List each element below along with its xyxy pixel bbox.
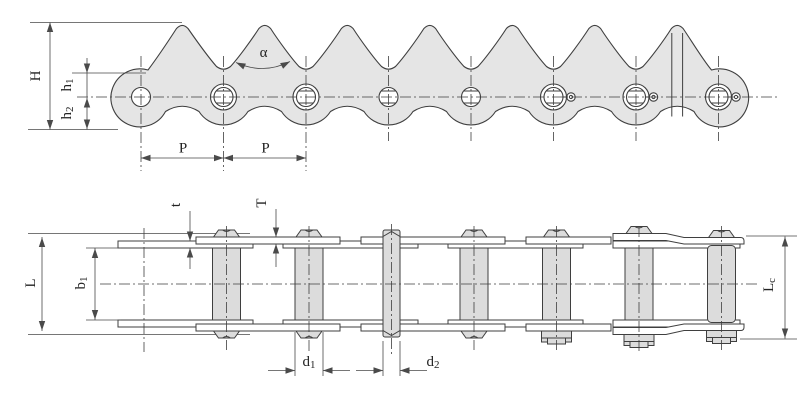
plan-view: t T L b1 d1 bbox=[23, 198, 797, 376]
dim-label-Lc: Lc bbox=[761, 278, 778, 292]
outer-plate bbox=[196, 324, 340, 331]
dim-label-P-left: P bbox=[179, 141, 187, 157]
dimension-pitch: P P bbox=[141, 141, 306, 162]
dim-label-T: T bbox=[254, 198, 270, 207]
outer-plate bbox=[196, 237, 340, 244]
dimension-t: t bbox=[168, 202, 193, 269]
dimension-h2: h2 bbox=[59, 98, 90, 130]
dim-label-b1: b1 bbox=[73, 277, 90, 290]
dim-label-h1: h1 bbox=[59, 79, 76, 92]
dimension-L: L bbox=[23, 237, 45, 331]
chain-technical-drawing: H h1 h2 P P α bbox=[0, 0, 812, 402]
dim-label-d1: d1 bbox=[303, 354, 316, 371]
drawing-canvas: H h1 h2 P P α bbox=[0, 0, 812, 402]
dim-label-H: H bbox=[28, 70, 44, 81]
dimension-T: T bbox=[254, 198, 279, 267]
sharp-top-plate-outline bbox=[111, 25, 749, 126]
outer-plate bbox=[526, 324, 611, 331]
dimension-Lc: Lc bbox=[761, 237, 788, 339]
dim-label-d2: d2 bbox=[427, 354, 440, 371]
outer-plate bbox=[526, 237, 611, 244]
dim-label-t: t bbox=[168, 202, 184, 207]
dim-label-alpha: α bbox=[260, 45, 268, 61]
dimension-d2: d2 bbox=[356, 341, 440, 376]
dimension-d1: d1 bbox=[268, 332, 350, 376]
dimension-b1: b1 bbox=[73, 248, 121, 320]
side-view: H h1 h2 P P α bbox=[28, 23, 778, 172]
dim-label-h2: h2 bbox=[59, 107, 76, 120]
dim-label-P-right: P bbox=[261, 141, 269, 157]
dim-label-L: L bbox=[23, 278, 39, 287]
